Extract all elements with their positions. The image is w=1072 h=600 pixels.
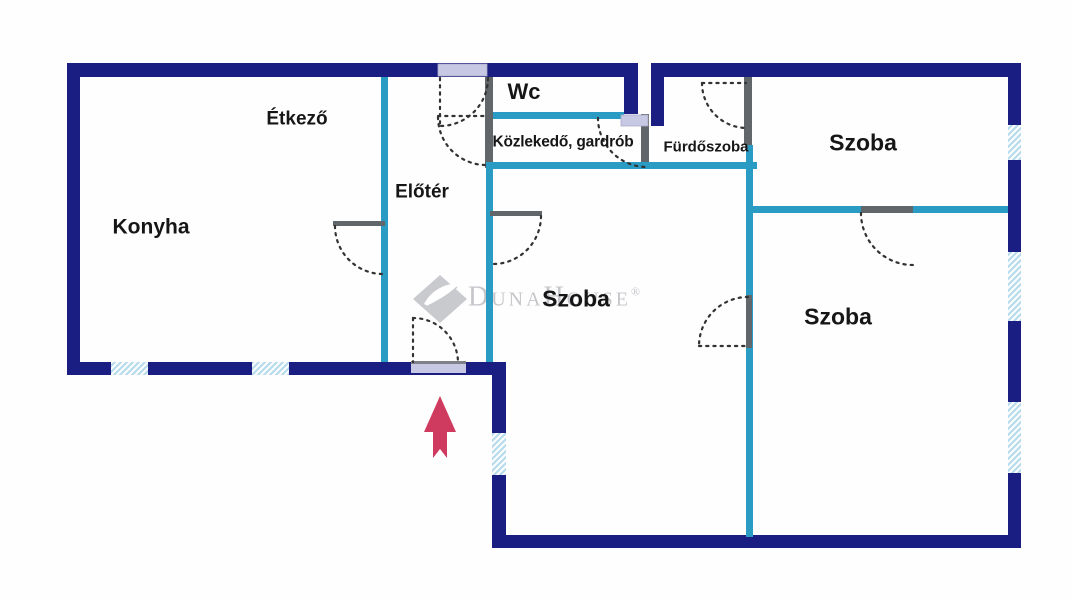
entrance-arrow-icon	[424, 396, 456, 458]
window-right-middle	[1008, 252, 1021, 321]
window-bottom-left-2	[252, 362, 289, 375]
window-bottom-left-1	[111, 362, 148, 375]
wall-wc-bottom	[493, 112, 624, 119]
wall-outer-left	[67, 63, 80, 375]
floorplan-page: DunaHouse®	[0, 0, 1072, 600]
door-leaf-eloter-szoba	[490, 211, 542, 216]
door-arc-szoba-center	[699, 297, 748, 346]
door-arc-konyha	[335, 226, 383, 274]
door-top-entrance	[438, 64, 487, 76]
wall-konyha-eloter	[381, 77, 388, 362]
wall-top-right-segment	[651, 63, 1021, 77]
floorplan-drawing	[0, 0, 1072, 600]
teal-walls	[381, 77, 1008, 537]
wall-wc-left	[485, 77, 493, 168]
wall-top-left-segment	[67, 63, 638, 77]
door-leaf-konyha	[333, 221, 385, 226]
gray-partitions	[485, 77, 752, 168]
door-arc-kozlekedo	[438, 117, 486, 165]
door-arc-szoba-right	[861, 213, 913, 265]
wall-outer-bottom	[492, 535, 1021, 548]
wall-notch-right-stub	[651, 63, 664, 126]
window-mid-left	[492, 433, 506, 475]
wall-notch-left-stub	[624, 63, 638, 114]
door-arc-top-entrance	[440, 78, 488, 126]
window-right-top	[1008, 125, 1021, 160]
wall-kozlekedo-bottom	[486, 162, 757, 169]
wall-eloter-szoba	[486, 168, 493, 362]
door-leaf-szoba-right	[861, 206, 913, 213]
outer-walls	[67, 63, 1021, 548]
door-arc-furdoszoba	[702, 83, 746, 128]
wall-furdoszoba-right	[744, 77, 752, 145]
door-arc-eloter-szoba	[493, 216, 541, 264]
door-leaf-szoba-center	[746, 295, 752, 348]
doors	[333, 64, 913, 373]
door-furdoszoba-entry	[621, 115, 648, 126]
door-arc-main-entrance	[413, 318, 458, 363]
door-main-entrance-lintel	[411, 361, 466, 364]
windows	[111, 125, 1021, 475]
window-right-bottom	[1008, 402, 1021, 473]
